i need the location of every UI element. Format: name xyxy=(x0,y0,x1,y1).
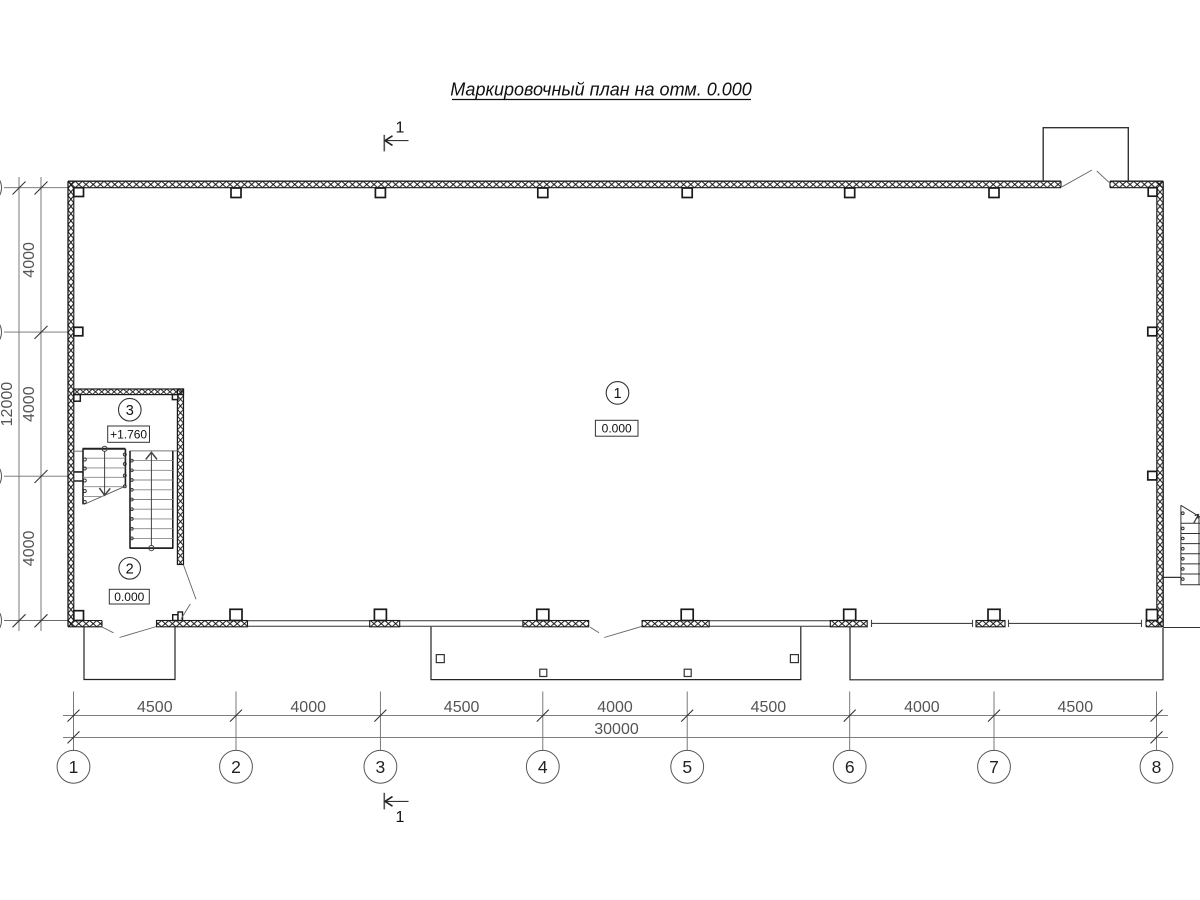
svg-text:3: 3 xyxy=(376,757,386,777)
svg-text:5: 5 xyxy=(682,757,692,777)
svg-text:4000: 4000 xyxy=(904,699,940,716)
svg-text:Маркировочный план на отм. 0.0: Маркировочный план на отм. 0.000 xyxy=(450,80,752,100)
svg-text:3: 3 xyxy=(126,403,134,419)
svg-text:1: 1 xyxy=(69,757,79,777)
svg-text:4000: 4000 xyxy=(597,699,633,716)
svg-text:6: 6 xyxy=(845,757,855,777)
svg-text:0.000: 0.000 xyxy=(602,422,632,436)
svg-text:1: 1 xyxy=(613,386,621,402)
svg-text:4: 4 xyxy=(538,757,548,777)
svg-text:4000: 4000 xyxy=(21,531,38,567)
svg-text:4500: 4500 xyxy=(444,699,480,716)
svg-text:4500: 4500 xyxy=(1058,699,1094,716)
svg-text:1: 1 xyxy=(396,120,405,137)
svg-text:4500: 4500 xyxy=(137,699,173,716)
svg-text:0.000: 0.000 xyxy=(114,590,144,604)
svg-text:4000: 4000 xyxy=(21,386,38,422)
svg-text:2: 2 xyxy=(126,561,134,577)
svg-text:4000: 4000 xyxy=(290,699,326,716)
svg-text:12000: 12000 xyxy=(0,382,16,427)
svg-text:4500: 4500 xyxy=(751,699,787,716)
svg-text:7: 7 xyxy=(989,757,999,777)
svg-text:2: 2 xyxy=(231,757,241,777)
svg-text:8: 8 xyxy=(1152,757,1162,777)
svg-text:+1.760: +1.760 xyxy=(110,428,147,442)
svg-text:30000: 30000 xyxy=(594,721,639,738)
svg-text:4000: 4000 xyxy=(21,242,38,278)
svg-text:1: 1 xyxy=(396,809,405,826)
